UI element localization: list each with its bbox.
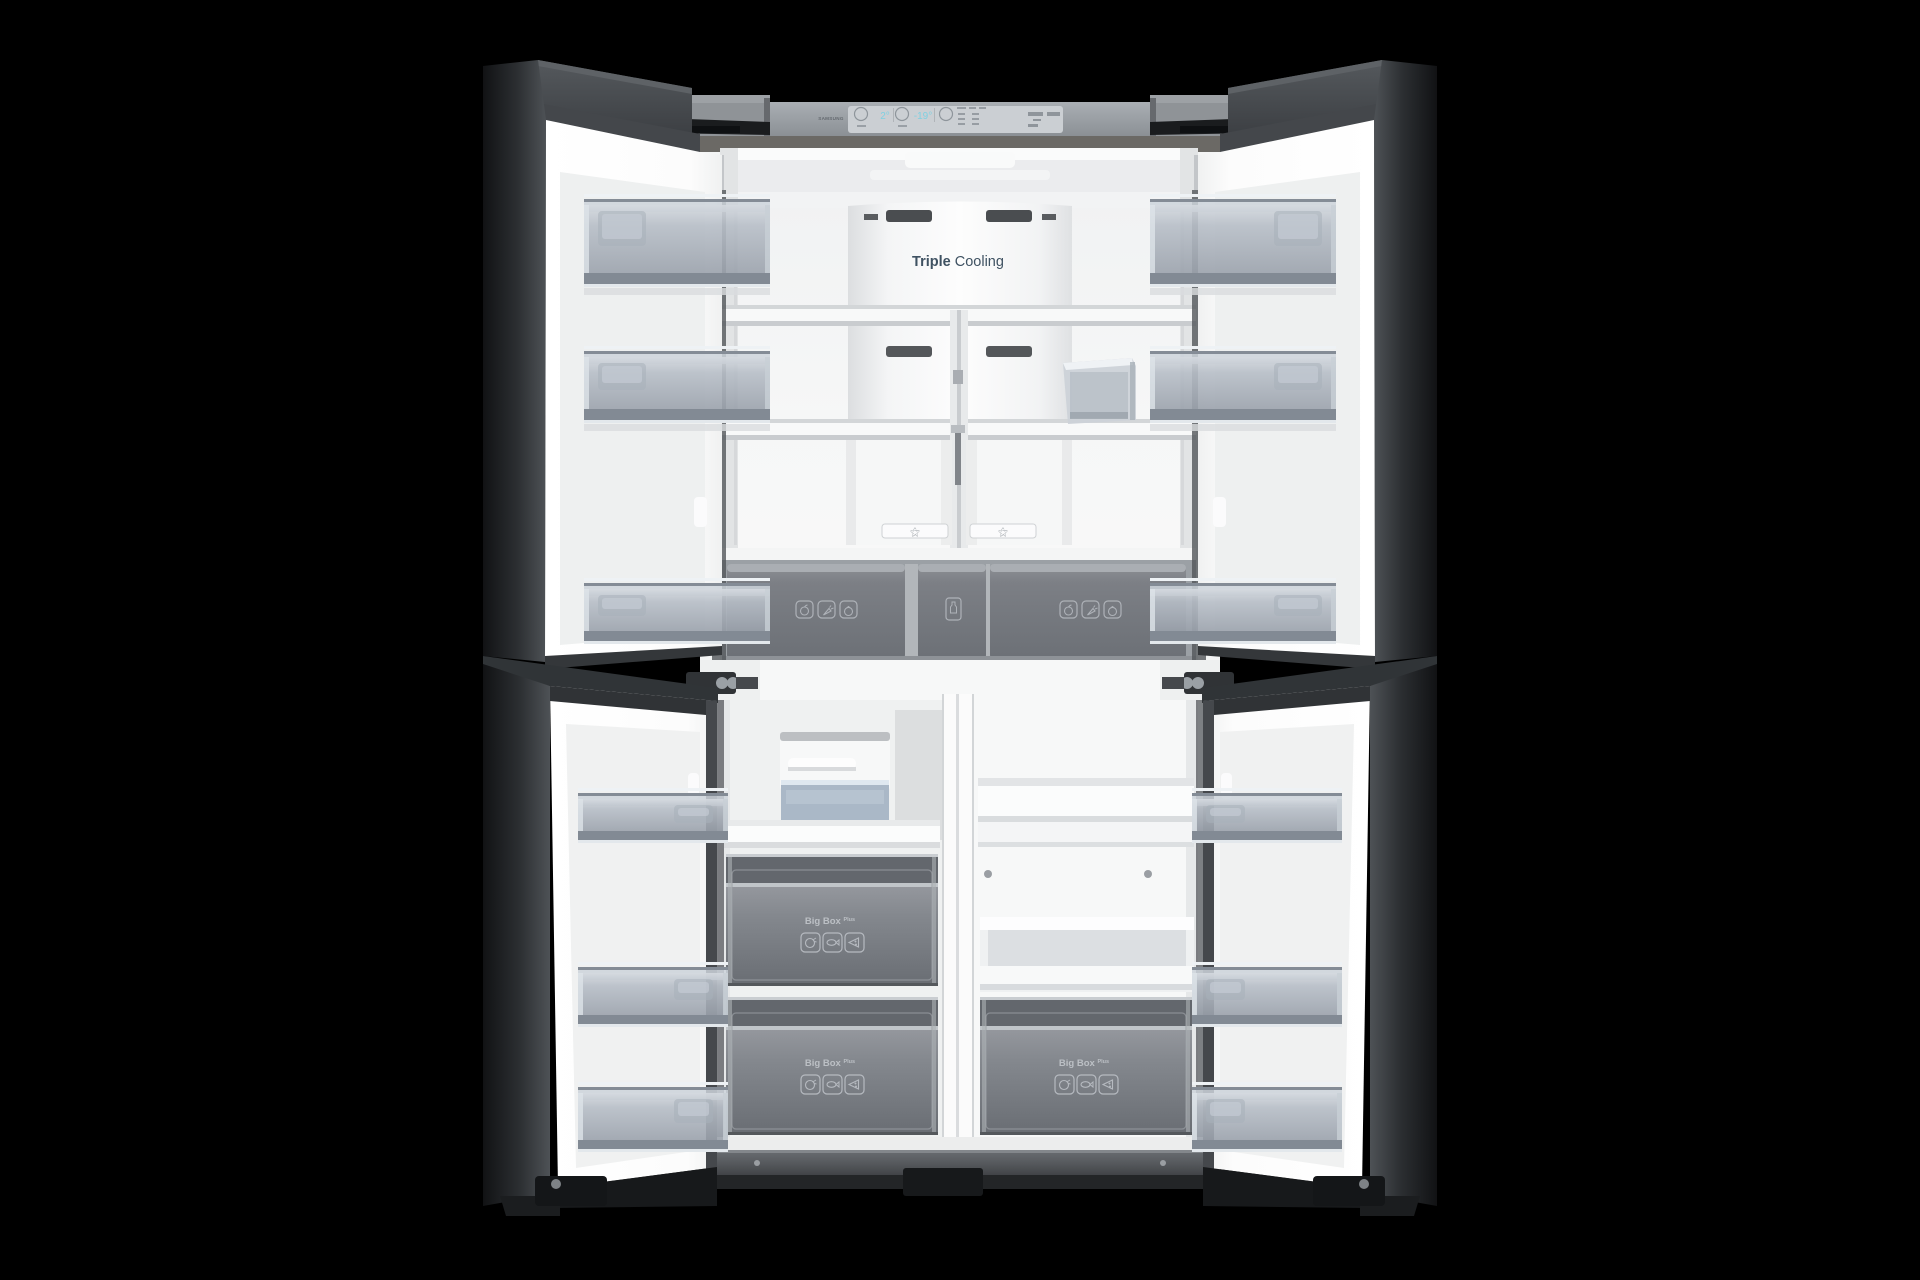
svg-text:⚝: ⚝ — [910, 527, 920, 538]
svg-text:Triple Cooling: Triple Cooling — [912, 254, 1004, 270]
svg-text:SAMSUNG: SAMSUNG — [818, 116, 844, 121]
svg-text:2°: 2° — [880, 111, 890, 122]
svg-text:⚝: ⚝ — [998, 527, 1008, 538]
svg-text:-19°: -19° — [914, 111, 932, 122]
